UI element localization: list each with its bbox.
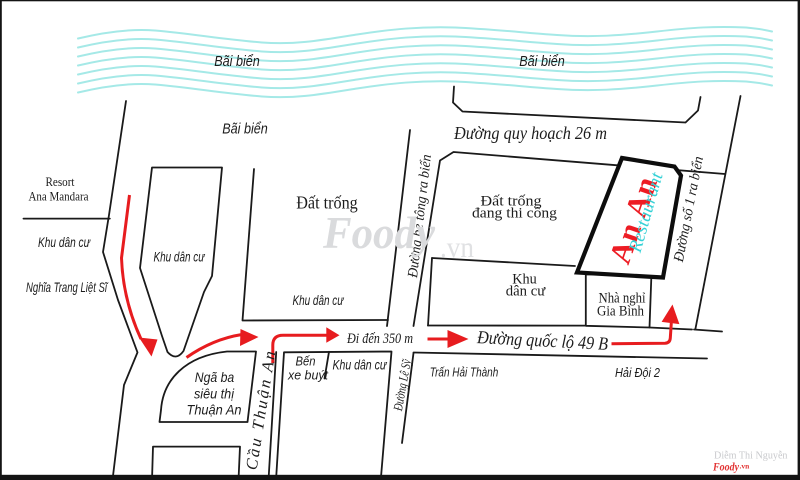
- svg-text:Trấn Hải Thành: Trấn Hải Thành: [430, 365, 499, 380]
- svg-text:Foody: Foody: [712, 460, 739, 474]
- svg-text:Ana Mandara: Ana Mandara: [29, 190, 89, 204]
- svg-text:Đường Lê Sỹ: Đường Lê Sỹ: [390, 357, 414, 412]
- svg-text:Khu dân cư: Khu dân cư: [38, 235, 91, 250]
- svg-text:Khu dân cư: Khu dân cư: [293, 293, 345, 308]
- svg-text:Nghĩa Trang Liệt Sĩ: Nghĩa Trang Liệt Sĩ: [26, 279, 109, 295]
- svg-text:Cầu Thuận An: Cầu Thuận An: [242, 350, 280, 471]
- svg-text:Thuận An: Thuận An: [187, 402, 242, 418]
- svg-text:Khu dân cư: Khu dân cư: [154, 250, 206, 265]
- svg-text:Bãi biển: Bãi biển: [519, 53, 565, 70]
- svg-text:Resort: Resort: [46, 175, 75, 189]
- svg-text:Khu dân cư: Khu dân cư: [333, 358, 388, 373]
- svg-text:Gia Bình: Gia Bình: [597, 304, 645, 320]
- svg-text:xe buýt: xe buýt: [287, 368, 329, 383]
- svg-text:dân cư: dân cư: [506, 284, 546, 300]
- svg-text:đang thi công: đang thi công: [472, 206, 558, 222]
- svg-text:Ngã ba: Ngã ba: [195, 369, 235, 385]
- svg-text:.vn: .vn: [740, 462, 751, 471]
- svg-text:Hải Đội 2: Hải Đội 2: [615, 365, 661, 380]
- svg-text:Foody: Foody: [322, 208, 436, 258]
- svg-text:Bãi biển: Bãi biển: [214, 53, 260, 70]
- svg-text:Bến: Bến: [296, 354, 316, 369]
- svg-text:siêu thị: siêu thị: [194, 386, 235, 402]
- svg-text:Bãi biển: Bãi biển: [222, 121, 268, 138]
- svg-text:.vn: .vn: [440, 231, 474, 264]
- svg-text:Đi đến 350 m: Đi đến 350 m: [346, 331, 413, 347]
- svg-text:Đường quy hoạch 26 m: Đường quy hoạch 26 m: [453, 123, 607, 143]
- svg-text:Đường quốc lộ 49 B: Đường quốc lộ 49 B: [476, 328, 609, 355]
